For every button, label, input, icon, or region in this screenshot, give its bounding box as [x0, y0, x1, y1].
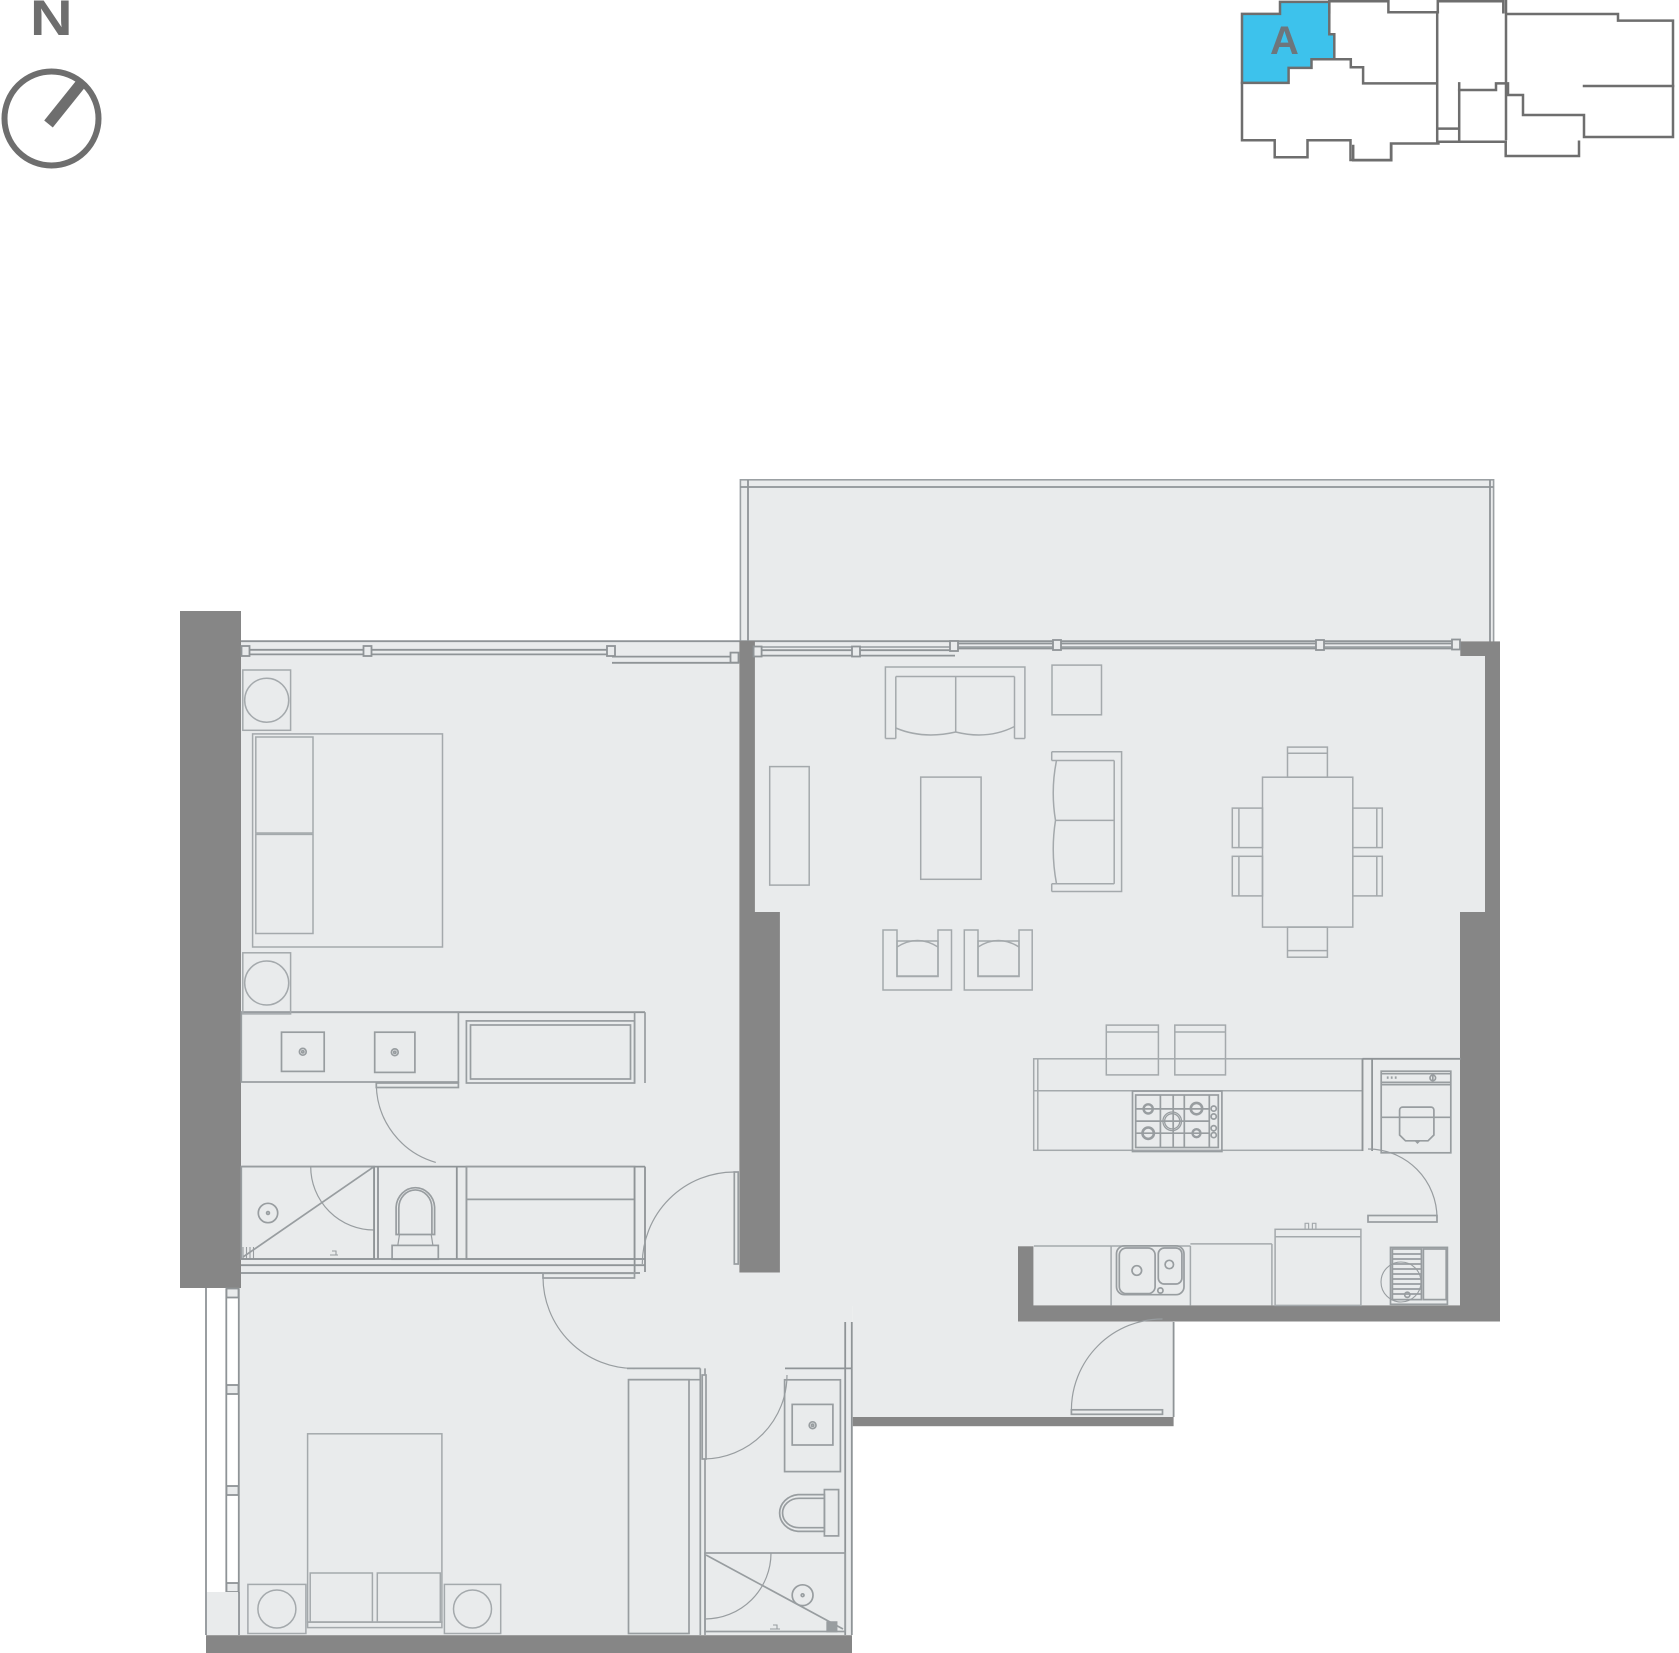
svg-text:A: A	[1270, 19, 1299, 63]
svg-text:N: N	[30, 0, 73, 46]
